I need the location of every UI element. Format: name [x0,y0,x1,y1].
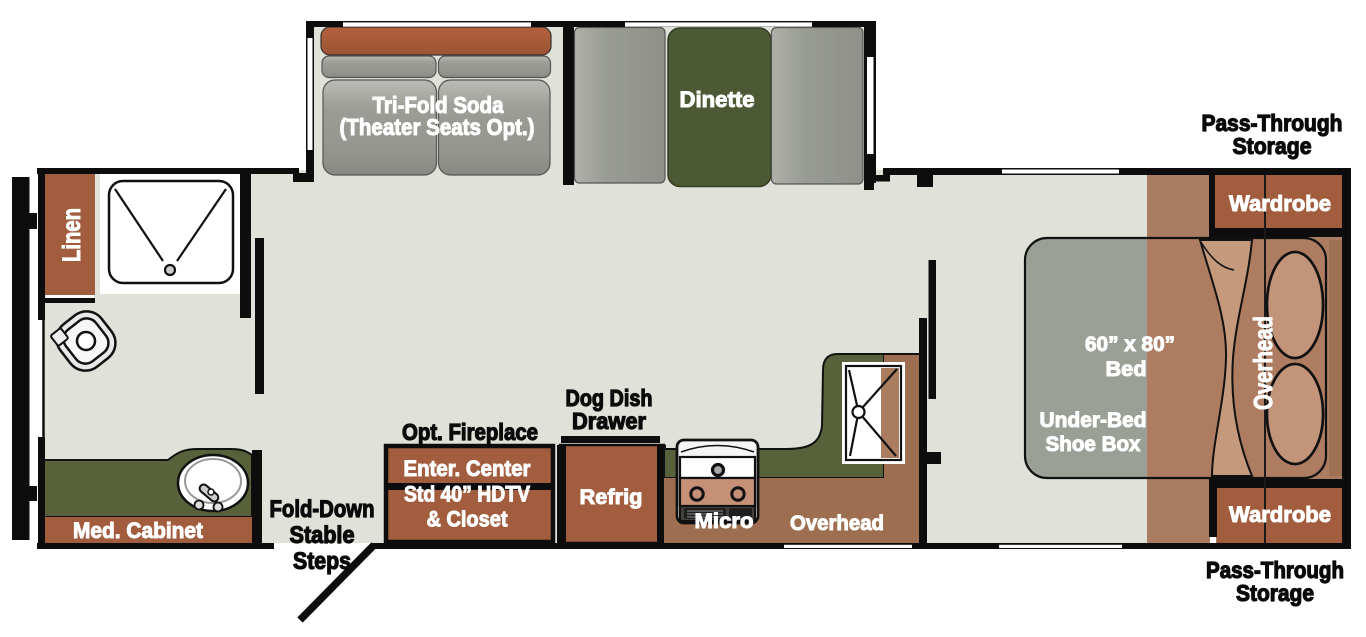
svg-text:60” x 80”: 60” x 80” [1085,333,1175,356]
svg-text:Steps: Steps [293,548,351,575]
svg-text:Std 40” HDTV: Std 40” HDTV [404,482,530,507]
svg-text:(Theater Seats Opt.): (Theater Seats Opt.) [340,114,535,140]
svg-text:Overhead: Overhead [1248,316,1278,410]
svg-text:Overhead: Overhead [790,512,884,535]
svg-text:Shoe Box: Shoe Box [1046,433,1141,456]
svg-text:Dinette: Dinette [680,87,755,112]
svg-text:Enter. Center: Enter. Center [404,456,531,481]
svg-text:Refrig: Refrig [580,486,643,509]
svg-text:Stable: Stable [290,522,355,549]
svg-text:Bed: Bed [1106,358,1147,381]
svg-text:Micro: Micro [695,510,754,533]
svg-text:& Closet: & Closet [427,507,509,532]
svg-text:Drawer: Drawer [572,408,646,434]
svg-text:Wardrobe: Wardrobe [1229,502,1331,527]
svg-text:Fold-Down: Fold-Down [270,496,375,523]
svg-text:Under-Bed: Under-Bed [1040,409,1147,432]
svg-text:Opt. Fireplace: Opt. Fireplace [402,419,538,445]
svg-text:Linen: Linen [58,208,86,262]
svg-text:Med. Cabinet: Med. Cabinet [73,518,204,543]
svg-text:Storage: Storage [1236,580,1314,606]
svg-text:Storage: Storage [1233,133,1312,159]
svg-text:Wardrobe: Wardrobe [1229,191,1331,216]
